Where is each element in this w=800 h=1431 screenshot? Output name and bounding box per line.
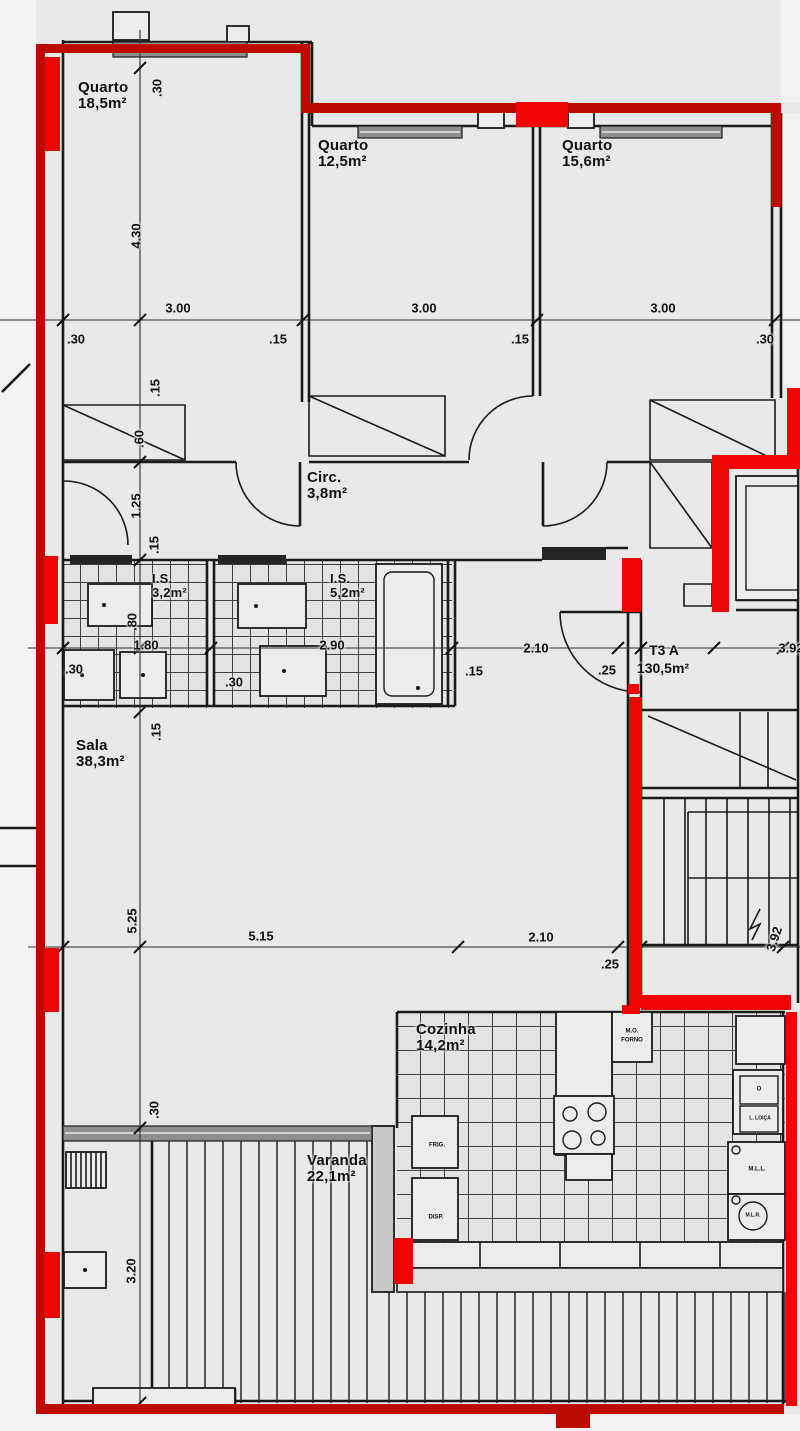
dim-label: 4.30 (129, 223, 144, 248)
red-outline-right-top (771, 103, 781, 207)
red-wall-stair-left (712, 455, 729, 612)
dim-label: 3.00 (411, 301, 436, 316)
room-area: 22,1m² (307, 1169, 367, 1185)
red-wall-left-sala (44, 948, 59, 1012)
red-wall-left-varanda (44, 1252, 60, 1318)
exterior-pier-1 (113, 12, 149, 40)
dishwasher-label: M.L.L. (748, 1167, 765, 1174)
sink-label: L. LOIÇA (749, 1116, 770, 1123)
dim-label: .80 (125, 613, 140, 631)
microwave-label: M.O. (626, 1029, 639, 1036)
background-strips (0, 0, 800, 1431)
fridge-label: FRIG. (429, 1143, 445, 1150)
floor-plan: Quarto 18,5m² Quarto 12,5m² Quarto 15,6m… (0, 0, 800, 1431)
outside-right-strip (783, 113, 800, 393)
counter-base (566, 1154, 612, 1180)
vent-grille-slats (71, 1152, 101, 1188)
dim-label: .30 (150, 79, 165, 97)
room-name: Circ. (307, 470, 347, 486)
red-wall-kitchen-right (786, 1012, 797, 1406)
varanda-fixtures (64, 1152, 235, 1405)
utility-tank-drain (83, 1268, 87, 1272)
red-outline-step (301, 44, 310, 110)
dim-label: 3.00 (650, 301, 675, 316)
pantry-label: DISP. (429, 1215, 444, 1222)
red-wall-sala-right (629, 697, 642, 1008)
entry-door (542, 547, 606, 560)
room-name: I.S. (152, 572, 187, 586)
red-wall-left-is (44, 556, 58, 624)
dim-label: .30 (147, 1101, 162, 1119)
dim-label: .25 (601, 957, 619, 972)
red-outline-bottom-stub (556, 1412, 590, 1428)
dim-label: 2.10 (528, 930, 553, 945)
dim-label: 2.90 (319, 638, 344, 653)
corner-step (93, 1388, 235, 1405)
stair-steps (648, 712, 798, 945)
lower-counter-band (397, 1242, 783, 1268)
is2-toilet (260, 646, 326, 696)
washer-label: M.L.R. (746, 1213, 761, 1220)
kitchen-fixtures (397, 1012, 785, 1292)
dim-label: .30 (67, 332, 85, 347)
dim-label: .60 (132, 430, 147, 448)
dim-label: 1.25 (129, 493, 144, 518)
red-outline-left (36, 44, 45, 1414)
dim-label: 3.20 (124, 1258, 139, 1283)
room-area: 12,5m² (318, 154, 368, 170)
room-label-quarto-1: Quarto 18,5m² (78, 80, 128, 112)
elevator-shaft (736, 476, 798, 600)
unit-area: 130,5m² (637, 660, 689, 676)
room-area: 5,2m² (330, 586, 365, 600)
walls (0, 12, 798, 1405)
room-label-is1: I.S. 3,2m² (152, 572, 187, 600)
dim-label: .15 (269, 332, 287, 347)
wall-segments (0, 40, 798, 1405)
is2-bathtub (376, 564, 442, 704)
red-wall-entry-stub (628, 684, 639, 694)
room-name: Cozinha (416, 1022, 476, 1038)
room-name: Quarto (562, 138, 612, 154)
room-area: 18,5m² (78, 96, 128, 112)
exterior-pier-2 (227, 26, 249, 42)
red-outline-top-left (36, 44, 308, 53)
red-wall-stair-bottom (641, 995, 791, 1010)
room-label-quarto-2: Quarto 12,5m² (318, 138, 368, 170)
dim-label: .30 (225, 675, 243, 690)
dim-label: 1.80 (133, 638, 158, 653)
is1-sliding-door (70, 555, 132, 564)
floorplan-linework (0, 0, 800, 1431)
dim-label: .30 (65, 662, 83, 677)
room-label-varanda: Varanda 22,1m² (307, 1153, 367, 1185)
red-outline-bottom (36, 1404, 784, 1414)
room-area: 3,2m² (152, 586, 187, 600)
cooktop (554, 1096, 614, 1154)
is2-bathtub-drain (416, 686, 420, 690)
oven-label: FORNO (621, 1038, 643, 1045)
is1-bidet-drain (141, 673, 145, 677)
unit-code: T3 A (649, 642, 679, 658)
red-wall-kitchen-stub (622, 1005, 640, 1014)
room-name: I.S. (330, 572, 365, 586)
room-label-is2: I.S. 5,2m² (330, 572, 365, 600)
dim-label: .15 (465, 664, 483, 679)
room-label-cozinha: Cozinha 14,2m² (416, 1022, 476, 1054)
room-name: Quarto (318, 138, 368, 154)
room-label-sala: Sala 38,3m² (76, 738, 125, 770)
dim-label: .15 (148, 379, 163, 397)
dim-label: .30 (756, 332, 774, 347)
room-area: 38,3m² (76, 754, 125, 770)
is2-toilet-drain (282, 669, 286, 673)
kitchen-varanda-wall (372, 1126, 394, 1292)
room-label-quarto-3: Quarto 15,6m² (562, 138, 612, 170)
dim-lines (0, 30, 800, 1405)
outside-left-strip (0, 0, 36, 1431)
dimension-lines (0, 30, 800, 1409)
corner-cabinet (736, 1016, 785, 1064)
red-wall-left-top (45, 57, 60, 151)
dim-label: 3.92 (778, 641, 800, 656)
room-name: Quarto (78, 80, 128, 96)
kitchen-threshold (397, 1268, 783, 1292)
bathroom-fixtures (64, 564, 442, 704)
is1-sink-drain (102, 603, 106, 607)
room-area: 14,2m² (416, 1038, 476, 1054)
room-area: 15,6m² (562, 154, 612, 170)
is2-sink-drain (254, 604, 258, 608)
dim-label: 5.25 (125, 908, 140, 933)
pantry-box (412, 1178, 458, 1240)
outside-bottom-strip (0, 1414, 800, 1431)
outside-topright-strip (781, 0, 800, 103)
dim-label: 3.00 (165, 301, 190, 316)
dim-label: .25 (598, 663, 616, 678)
red-wall-entry (622, 558, 641, 612)
dim-label: .15 (511, 332, 529, 347)
is1-sink (88, 584, 152, 626)
room-name: Varanda (307, 1153, 367, 1169)
is2-sliding-door (218, 555, 286, 564)
oven-o-label: O (757, 1087, 762, 1094)
is2-sink (238, 584, 306, 628)
dim-label: .15 (147, 536, 162, 554)
dim-label: 5.15 (248, 929, 273, 944)
red-wall-right-edge (787, 388, 800, 460)
room-label-circ: Circ. 3,8m² (307, 470, 347, 502)
room-name: Sala (76, 738, 125, 754)
room-area: 3,8m² (307, 486, 347, 502)
red-wall-top-middle (516, 102, 568, 127)
dim-label: 2.10 (523, 641, 548, 656)
dim-label: .15 (149, 723, 164, 741)
red-wall-varanda-right (394, 1238, 413, 1284)
